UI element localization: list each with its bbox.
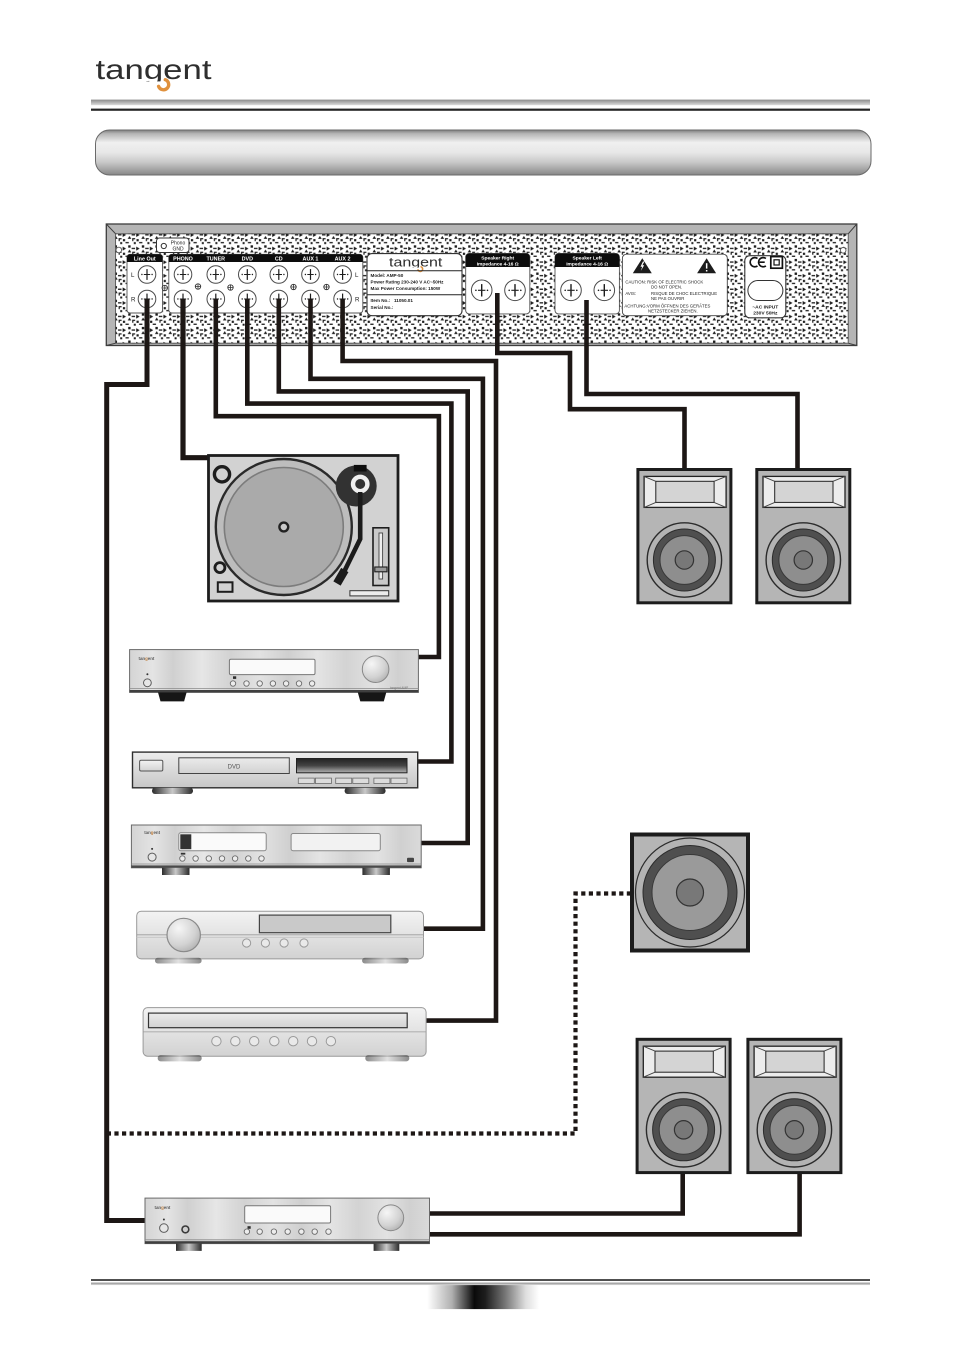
svg-text:~AC INPUT: ~AC INPUT <box>752 304 778 310</box>
svg-text:Speaker Right: Speaker Right <box>481 255 514 261</box>
svg-text:tangent: tangent <box>155 1205 171 1210</box>
svg-text:PHONO: PHONO <box>173 256 193 262</box>
svg-text:Item No.: 11050.01: Item No.: 11050.01 <box>371 298 414 303</box>
svg-text:DVD: DVD <box>228 765 241 771</box>
svg-text:L: L <box>355 272 359 279</box>
svg-text:R: R <box>355 296 360 303</box>
svg-text:NETZSTECKER ZIEHEN.: NETZSTECKER ZIEHEN. <box>648 308 698 313</box>
svg-text:DVD: DVD <box>242 256 253 262</box>
svg-text:Serial No.:: Serial No.: <box>371 305 394 310</box>
svg-text:tangent: tangent <box>139 656 155 661</box>
svg-text:tangent: tangent <box>144 830 160 835</box>
svg-text:Max Power Consumption: 150W: Max Power Consumption: 150W <box>371 286 441 291</box>
svg-text:CD: CD <box>275 256 283 262</box>
svg-text:DO NOT OPEN.: DO NOT OPEN. <box>651 284 682 289</box>
svg-text:GND: GND <box>172 247 184 253</box>
svg-text:Speaker Left: Speaker Left <box>573 255 603 261</box>
svg-text:AUX 2: AUX 2 <box>335 256 351 262</box>
svg-text:AUX 1: AUX 1 <box>303 256 319 262</box>
svg-text:Phono: Phono <box>171 241 186 247</box>
svg-text:Line Out: Line Out <box>134 256 156 262</box>
svg-text:AVIS:: AVIS: <box>625 291 636 296</box>
svg-text:R: R <box>131 296 136 303</box>
svg-text:Model: AMP-50: Model: AMP-50 <box>371 273 404 278</box>
svg-text:230V 50Hz: 230V 50Hz <box>753 311 778 317</box>
svg-text:Impedance 4-16 Ω: Impedance 4-16 Ω <box>566 262 608 268</box>
svg-text:L: L <box>131 272 135 279</box>
svg-text:tangent AMP: tangent AMP <box>390 686 408 690</box>
svg-text:Power Rating 230-240 V AC~50Hz: Power Rating 230-240 V AC~50Hz <box>371 280 445 285</box>
svg-text:Impedance 4-16 Ω: Impedance 4-16 Ω <box>477 262 519 268</box>
svg-text:NE PAS OUVRIR: NE PAS OUVRIR <box>651 296 684 301</box>
svg-text:TUNER: TUNER <box>207 256 226 262</box>
